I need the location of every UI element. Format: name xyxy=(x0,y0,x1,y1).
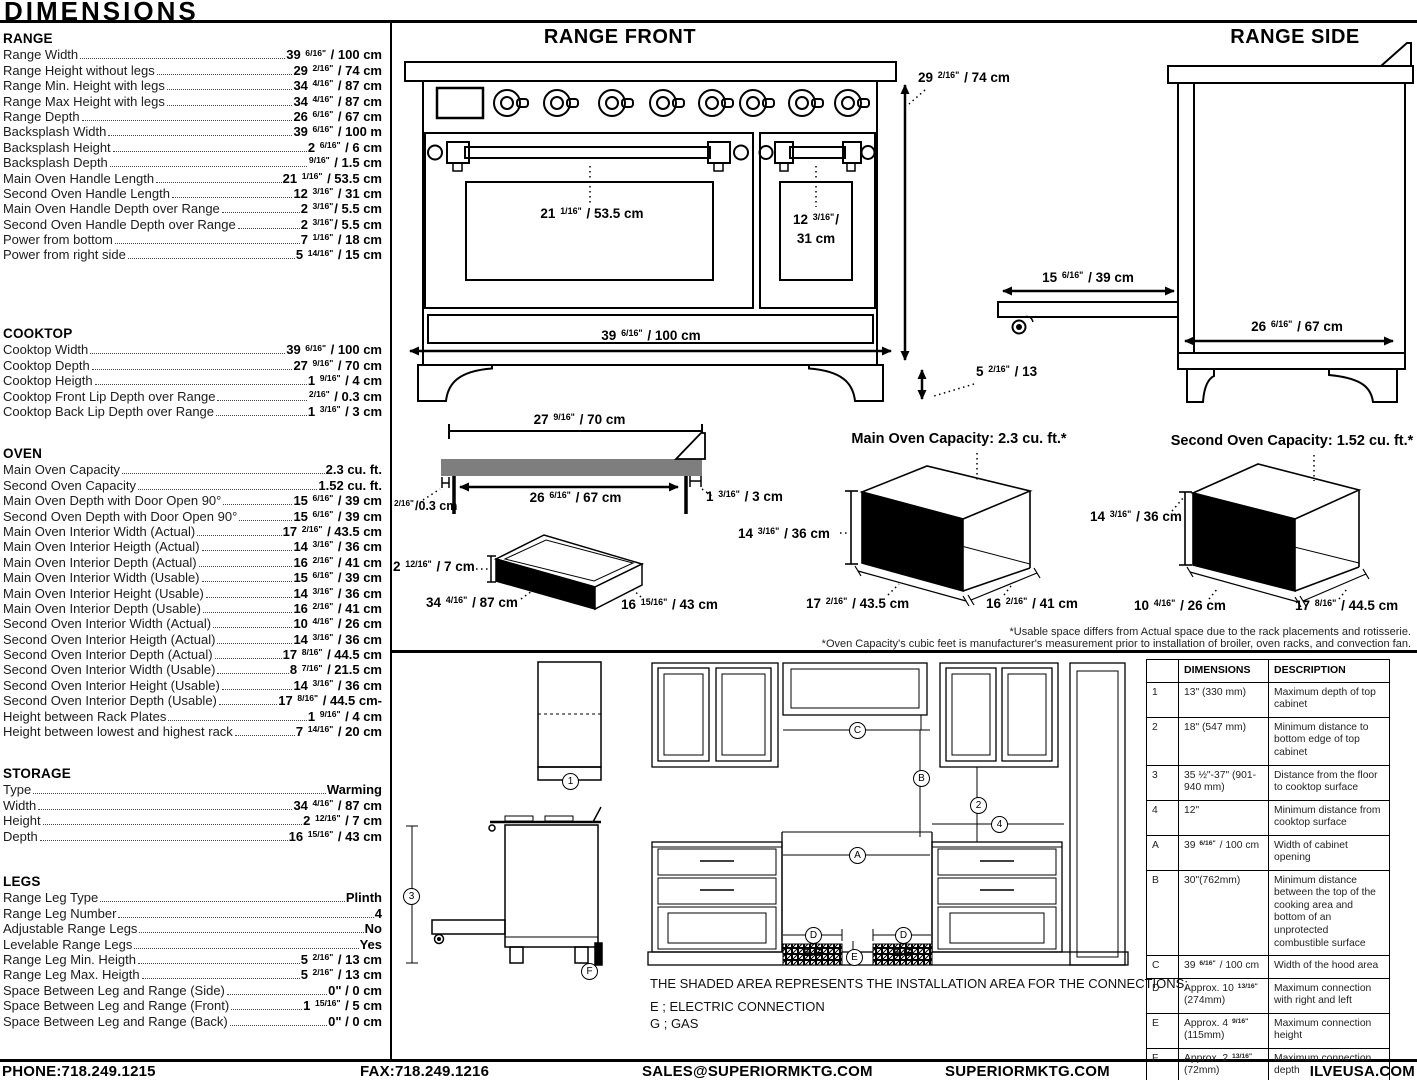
spec-row: Range Width39 6/16" / 100 cm xyxy=(3,47,382,62)
dotted-leader xyxy=(100,901,345,902)
table-cell-id: F xyxy=(1147,1048,1179,1080)
spec-label: Range Depth xyxy=(3,109,80,124)
main-oven-height-dimension: 14 3/16" / 36 cm xyxy=(738,526,830,541)
dotted-leader xyxy=(134,948,358,949)
table-header-row: DIMENSIONS DESCRIPTION xyxy=(1147,660,1390,683)
spec-list: Range Width39 6/16" / 100 cmRange Height… xyxy=(3,47,382,262)
spec-label: Cooktop Front Lip Depth over Range xyxy=(3,389,215,404)
dotted-leader xyxy=(227,994,327,995)
spec-label: Main Oven Interior Depth (Actual) xyxy=(3,555,197,570)
spec-label: Cooktop Heigth xyxy=(3,373,93,388)
spec-value: 1 15/16" / 5 cm xyxy=(303,998,382,1013)
spec-value: 2 6/16" / 6 cm xyxy=(308,140,382,155)
table-cell-description: Width of cabinet opening xyxy=(1269,835,1390,870)
spec-label: Space Between Leg and Range (Front) xyxy=(3,998,229,1013)
spec-value: 16 2/16" / 41 cm xyxy=(293,601,382,616)
spec-row: Second Oven Interior Depth (Actual)17 8/… xyxy=(3,647,382,662)
marker-circle-1: 1 xyxy=(562,773,579,790)
spec-row: Cooktop Front Lip Depth over Range2/16" … xyxy=(3,388,382,403)
second-oven-height-dimension: 14 3/16" / 36 cm xyxy=(1090,509,1182,524)
spec-value: 10 4/16" / 26 cm xyxy=(293,616,382,631)
electric-connection-note: E ; ELECTRIC CONNECTION xyxy=(650,999,825,1014)
spec-label: Main Oven Depth with Door Open 90° xyxy=(3,493,221,508)
spec-row: Space Between Leg and Range (Side)0" / 0… xyxy=(3,982,382,997)
spec-value: 5 2/16" / 13 cm xyxy=(301,967,382,982)
spec-label: Space Between Leg and Range (Side) xyxy=(3,983,225,998)
table-cell-description: Maximum depth of top cabinet xyxy=(1269,682,1390,717)
spec-row: Main Oven Interior Width (Usable)15 6/16… xyxy=(3,570,382,585)
dotted-leader xyxy=(142,978,300,979)
dotted-leader xyxy=(206,597,293,598)
side-depth-dimension: 26 6/16" / 67 cm xyxy=(1202,319,1392,334)
dotted-leader xyxy=(138,963,300,964)
main-oven-capacity-drawing xyxy=(840,453,1040,606)
spec-label: Second Oven Interior Heigth (Actual) xyxy=(3,632,215,647)
spec-section-title: RANGE xyxy=(3,31,382,47)
dotted-leader xyxy=(219,704,277,705)
table-cell-id: E xyxy=(1147,1013,1179,1048)
spec-label: Range Leg Number xyxy=(3,906,116,921)
spec-value: 34 4/16" / 87 cm xyxy=(293,78,382,93)
dotted-leader xyxy=(202,581,293,582)
spec-label: Range Width xyxy=(3,47,78,62)
spec-row: Range Height without legs29 2/16" / 74 c… xyxy=(3,62,382,77)
spec-label: Second Oven Handle Length xyxy=(3,186,170,201)
spec-row: Cooktop Depth27 9/16" / 70 cm xyxy=(3,357,382,372)
dimensions-spec-sheet: DIMENSIONS RANGE Range Width39 6/16" / 1… xyxy=(0,0,1417,1080)
spec-row: Main Oven Interior Depth (Usable)16 2/16… xyxy=(3,601,382,616)
dotted-leader xyxy=(216,415,307,416)
dotted-leader xyxy=(38,809,292,810)
spec-value: 2 3/16"/ 5.5 cm xyxy=(301,201,382,216)
spec-row: Second Oven Capacity1.52 cu. ft. xyxy=(3,477,382,492)
spec-label: Range Max Height with legs xyxy=(3,94,165,109)
spec-label: Second Oven Interior Width (Actual) xyxy=(3,616,211,631)
dotted-leader xyxy=(156,182,282,183)
spec-label: Range Leg Max. Heigth xyxy=(3,967,140,982)
dotted-leader xyxy=(118,917,373,918)
spec-list: TypeWarmingWidth34 4/16" / 87 cmHeight2 … xyxy=(3,782,382,844)
storage-depth-dimension: 16 15/16" / 43 cm xyxy=(621,597,718,612)
spec-row: Main Oven Interior Heigth (Actual)14 3/1… xyxy=(3,539,382,554)
spec-value: 17 8/16" / 44.5 cm xyxy=(283,647,382,662)
table-cell-dimension: Approx. 4 9/16" (115mm) xyxy=(1179,1013,1269,1048)
spec-value: 16 2/16" / 41 cm xyxy=(293,555,382,570)
spec-section-oven: OVEN Main Oven Capacity2.3 cu. ft.Second… xyxy=(3,446,382,739)
dotted-leader xyxy=(115,243,300,244)
dotted-leader xyxy=(82,120,293,121)
spec-row: Width34 4/16" / 87 cm xyxy=(3,797,382,812)
front-second-door-dimension-line1: 12 3/16"/ xyxy=(766,210,866,229)
spec-section-legs: LEGS Range Leg TypePlinthRange Leg Numbe… xyxy=(3,874,382,1029)
spec-list: Range Leg TypePlinthRange Leg Number4Adj… xyxy=(3,890,382,1029)
spec-row: Range Min. Height with legs34 4/16" / 87… xyxy=(3,78,382,93)
spec-row: Second Oven Depth with Door Open 90°15 6… xyxy=(3,508,382,523)
dotted-leader xyxy=(238,228,300,229)
installation-side-view xyxy=(406,662,602,965)
table-row: 335 ½"-37" (901-940 mm)Distance from the… xyxy=(1147,765,1390,800)
spec-label: Second Oven Handle Depth over Range xyxy=(3,217,236,232)
spec-row: Main Oven Interior Depth (Actual)16 2/16… xyxy=(3,554,382,569)
table-cell-id: 1 xyxy=(1147,682,1179,717)
spec-value: 14 3/16" / 36 cm xyxy=(293,678,382,693)
spec-value: 0" / 0 cm xyxy=(328,983,382,998)
spec-row: Power from bottom7 1/16" / 18 cm xyxy=(3,232,382,247)
spec-row: Space Between Leg and Range (Back)0" / 0… xyxy=(3,1013,382,1028)
table-cell-id: 4 xyxy=(1147,800,1179,835)
spec-label: Main Oven Interior Width (Usable) xyxy=(3,570,200,585)
dotted-leader xyxy=(110,166,307,167)
table-cell-dimension: Approx. 10 13/16" (274mm) xyxy=(1179,978,1269,1013)
spec-value: Warming xyxy=(327,782,382,797)
table-row: 412"Minimum distance from cooktop surfac… xyxy=(1147,800,1390,835)
spec-label: Power from bottom xyxy=(3,232,113,247)
usable-space-footnote: *Usable space differs from Actual space … xyxy=(1009,626,1411,638)
spec-row: Second Oven Interior Heigth (Actual)14 3… xyxy=(3,631,382,646)
spec-section-cooktop: COOKTOP Cooktop Width39 6/16" / 100 cmCo… xyxy=(3,326,382,419)
gas-connection-note: G ; GAS xyxy=(650,1016,698,1031)
dotted-leader xyxy=(167,89,293,90)
spec-label: Main Oven Interior Depth (Usable) xyxy=(3,601,201,616)
spec-value: 5 14/16" / 15 cm xyxy=(296,247,382,262)
spec-list: Main Oven Capacity2.3 cu. ft.Second Oven… xyxy=(3,462,382,739)
dotted-leader xyxy=(113,151,307,152)
table-cell-dimension: 18" (547 mm) xyxy=(1179,717,1269,765)
spec-label: Second Oven Depth with Door Open 90° xyxy=(3,509,237,524)
electric-gas-area-label-left: E.G xyxy=(784,947,841,959)
installation-front-view xyxy=(648,663,1128,965)
table-cell-description: Maximum connection with right and left xyxy=(1269,978,1390,1013)
dotted-leader xyxy=(239,520,292,521)
storage-height-dimension: 2 12/16" / 7 cm xyxy=(393,559,475,574)
cooktop-width-dimension: 27 9/16" / 70 cm xyxy=(482,412,677,427)
spec-value: 26 6/16" / 67 cm xyxy=(293,109,382,124)
storage-width-dimension: 34 4/16" / 87 cm xyxy=(426,595,518,610)
spec-row: Backsplash Depth9/16" / 1.5 cm xyxy=(3,155,382,170)
spec-label: Depth xyxy=(3,829,38,844)
table-cell-description: Minimum distance between the top of the … xyxy=(1269,870,1390,955)
spec-value: 5 2/16" / 13 cm xyxy=(301,952,382,967)
spec-label: Space Between Leg and Range (Back) xyxy=(3,1014,228,1029)
spec-value: 34 4/16" / 87 cm xyxy=(293,94,382,109)
spec-value: 2 3/16"/ 5.5 cm xyxy=(301,217,382,232)
second-oven-capacity-drawing xyxy=(1172,455,1369,607)
footer-email: SALES@SUPERIORMKTG.COM xyxy=(642,1063,873,1080)
dotted-leader xyxy=(80,58,285,59)
spec-label: Main Oven Interior Width (Actual) xyxy=(3,524,195,539)
side-door-open-dimension: 15 6/16" / 39 cm xyxy=(1002,270,1174,285)
spec-value: 21 1/16" / 53.5 cm xyxy=(283,171,382,186)
dotted-leader xyxy=(197,535,281,536)
spec-label: Second Oven Interior Depth (Usable) xyxy=(3,693,217,708)
spec-value: 29 2/16" / 74 cm xyxy=(293,63,382,78)
spec-label: Main Oven Interior Heigth (Actual) xyxy=(3,539,200,554)
spec-label: Type xyxy=(3,782,31,797)
spec-value: 15 6/16" / 39 cm xyxy=(293,493,382,508)
spec-row: Range Leg Min. Heigth5 2/16" / 13 cm xyxy=(3,952,382,967)
spec-label: Cooktop Back Lip Depth over Range xyxy=(3,404,214,419)
dotted-leader xyxy=(43,824,303,825)
spec-label: Range Leg Min. Heigth xyxy=(3,952,136,967)
dotted-leader xyxy=(172,197,292,198)
dotted-leader xyxy=(108,135,292,136)
footer-phone: PHONE:718.249.1215 xyxy=(2,1063,156,1080)
spec-section-title: OVEN xyxy=(3,446,382,462)
dotted-leader xyxy=(199,566,293,567)
spec-row: Space Between Leg and Range (Front)1 15/… xyxy=(3,998,382,1013)
dotted-leader xyxy=(217,400,306,401)
spec-value: Yes xyxy=(360,937,382,952)
spec-value: 15 6/16" / 39 cm xyxy=(293,509,382,524)
spec-label: Backsplash Width xyxy=(3,124,106,139)
spec-section-range: RANGE Range Width39 6/16" / 100 cmRange … xyxy=(3,31,382,262)
spec-value: 1.52 cu. ft. xyxy=(318,478,382,493)
main-oven-depth-dimension: 16 2/16" / 41 cm xyxy=(986,596,1078,611)
spec-row: TypeWarming xyxy=(3,782,382,797)
spec-label: Second Oven Interior Depth (Actual) xyxy=(3,647,213,662)
spec-value: 15 6/16" / 39 cm xyxy=(293,570,382,585)
spec-row: Adjustable Range LegsNo xyxy=(3,921,382,936)
dotted-leader xyxy=(122,473,325,474)
table-cell-dimension: 39 6/16" / 100 cm xyxy=(1179,956,1269,979)
dotted-leader xyxy=(235,735,295,736)
spec-section-storage: STORAGE TypeWarmingWidth34 4/16" / 87 cm… xyxy=(3,766,382,844)
spec-row: Main Oven Handle Length21 1/16" / 53.5 c… xyxy=(3,170,382,185)
spec-row: Second Oven Interior Height (Usable)14 3… xyxy=(3,677,382,692)
spec-value: 1 3/16" / 3 cm xyxy=(308,404,382,419)
spec-label: Second Oven Interior Width (Usable) xyxy=(3,662,215,677)
table-cell-description: Minimum distance from cooktop surface xyxy=(1269,800,1390,835)
dotted-leader xyxy=(202,550,293,551)
range-front-drawing xyxy=(405,62,974,401)
spec-row: Range Leg TypePlinth xyxy=(3,890,382,905)
dotted-leader xyxy=(223,504,292,505)
spec-value: 9/16" / 1.5 cm xyxy=(308,155,382,170)
range-side-title: RANGE SIDE xyxy=(1170,26,1417,49)
spec-row: Power from right side5 14/16" / 15 cm xyxy=(3,247,382,262)
dotted-leader xyxy=(222,212,300,213)
table-cell-id: A xyxy=(1147,835,1179,870)
dotted-leader xyxy=(213,627,292,628)
table-row: C39 6/16" / 100 cmWidth of the hood area xyxy=(1147,956,1390,979)
spec-row: Main Oven Interior Height (Usable)14 3/1… xyxy=(3,585,382,600)
spec-value: 39 6/16" / 100 m xyxy=(293,124,382,139)
spec-label: Cooktop Width xyxy=(3,342,88,357)
spec-row: Cooktop Heigth1 9/16" / 4 cm xyxy=(3,373,382,388)
table-row: A39 6/16" / 100 cmWidth of cabinet openi… xyxy=(1147,835,1390,870)
dotted-leader xyxy=(230,1025,327,1026)
spec-label: Second Oven Interior Height (Usable) xyxy=(3,678,220,693)
spec-section-title: LEGS xyxy=(3,874,382,890)
spec-value: 2/16" / 0.3 cm xyxy=(308,389,382,404)
table-cell-description: Width of the hood area xyxy=(1269,956,1390,979)
front-width-dimension: 39 6/16" / 100 cm xyxy=(551,328,751,343)
table-cell-dimension: 39 6/16" / 100 cm xyxy=(1179,835,1269,870)
spec-label: Power from right side xyxy=(3,247,126,262)
marker-circle-A: A xyxy=(849,847,866,864)
spec-value: 2.3 cu. ft. xyxy=(326,462,382,477)
table-cell-id: C xyxy=(1147,956,1179,979)
spec-row: Main Oven Interior Width (Actual)17 2/16… xyxy=(3,524,382,539)
spec-value: 39 6/16" / 100 cm xyxy=(286,47,382,62)
table-cell-dimension: 30"(762mm) xyxy=(1179,870,1269,955)
spec-section-title: COOKTOP xyxy=(3,326,382,342)
table-cell-id: B xyxy=(1147,870,1179,955)
spec-row: Range Leg Max. Heigth5 2/16" / 13 cm xyxy=(3,967,382,982)
spec-value: 17 2/16" / 43.5 cm xyxy=(283,524,382,539)
middle-divider xyxy=(391,650,1417,653)
table-row: DApprox. 10 13/16" (274mm)Maximum connec… xyxy=(1147,978,1390,1013)
cooktop-back-lip-dimension: 1 3/16" / 3 cm xyxy=(706,489,783,504)
dotted-leader xyxy=(40,840,288,841)
footer-website: SUPERIORMKTG.COM xyxy=(945,1063,1110,1080)
cooktop-inner-width-dimension: 26 6/16" / 67 cm xyxy=(478,490,673,505)
table-header-dimensions: DIMENSIONS xyxy=(1179,660,1269,683)
table-row: 113" (330 mm)Maximum depth of top cabine… xyxy=(1147,682,1390,717)
spec-label: Width xyxy=(3,798,36,813)
footer-website2: ILVEUSA.COM xyxy=(1310,1063,1415,1080)
second-oven-capacity-title: Second Oven Capacity: 1.52 cu. ft.* xyxy=(1168,433,1416,449)
dotted-leader xyxy=(90,353,285,354)
table-row: EApprox. 4 9/16" (115mm)Maximum connecti… xyxy=(1147,1013,1390,1048)
table-cell-dimension: 35 ½"-37" (901-940 mm) xyxy=(1179,765,1269,800)
marker-circle-4: 4 xyxy=(991,816,1008,833)
table-header-description: DESCRIPTION xyxy=(1269,660,1390,683)
spec-value: 0" / 0 cm xyxy=(328,1014,382,1029)
table-header-id xyxy=(1147,660,1179,683)
marker-circle-C: C xyxy=(849,722,866,739)
spec-row: Main Oven Capacity2.3 cu. ft. xyxy=(3,462,382,477)
dotted-leader xyxy=(168,720,307,721)
spec-value: 1 9/16" / 4 cm xyxy=(308,373,382,388)
spec-row: Second Oven Handle Length12 3/16" / 31 c… xyxy=(3,186,382,201)
spec-value: 2 12/16" / 7 cm xyxy=(303,813,382,828)
spec-row: Second Oven Interior Depth (Usable)17 8/… xyxy=(3,693,382,708)
dotted-leader xyxy=(92,369,293,370)
spec-value: 7 14/16" / 20 cm xyxy=(296,724,382,739)
spec-row: Range Leg Number4 xyxy=(3,905,382,920)
spec-value: 8 7/16" / 21.5 cm xyxy=(290,662,382,677)
table-cell-description: Distance from the floor to cooktop surfa… xyxy=(1269,765,1390,800)
table-cell-dimension: 13" (330 mm) xyxy=(1179,682,1269,717)
spec-row: Height between lowest and highest rack7 … xyxy=(3,724,382,739)
marker-circle-E: E xyxy=(846,949,863,966)
spec-list: Cooktop Width39 6/16" / 100 cmCooktop De… xyxy=(3,342,382,419)
dotted-leader xyxy=(157,74,293,75)
second-oven-width-dimension: 10 4/16" / 26 cm xyxy=(1134,598,1226,613)
shaded-area-note: THE SHADED AREA REPRESENTS THE INSTALLAT… xyxy=(650,976,1188,991)
spec-value: 14 3/16" / 36 cm xyxy=(293,539,382,554)
spec-value: 1 9/16" / 4 cm xyxy=(308,709,382,724)
range-side-drawing xyxy=(998,43,1413,402)
spec-row: Range Depth26 6/16" / 67 cm xyxy=(3,109,382,124)
table-cell-id: 3 xyxy=(1147,765,1179,800)
footer-fax: FAX:718.249.1216 xyxy=(360,1063,489,1080)
dotted-leader xyxy=(33,793,326,794)
dotted-leader xyxy=(203,612,292,613)
capacity-footnote: *Oven Capacity's cubic feet is manufactu… xyxy=(822,638,1411,650)
spec-value: 17 8/16" / 44.5 cm- xyxy=(278,693,382,708)
spec-row: Height between Rack Plates1 9/16" / 4 cm xyxy=(3,708,382,723)
spec-row: Second Oven Interior Width (Actual)10 4/… xyxy=(3,616,382,631)
marker-circle-3: 3 xyxy=(403,888,420,905)
spec-label: Adjustable Range Legs xyxy=(3,921,137,936)
top-rule xyxy=(0,20,1417,23)
spec-section-title: STORAGE xyxy=(3,766,382,782)
spec-label: Height between lowest and highest rack xyxy=(3,724,233,739)
dotted-leader xyxy=(128,258,295,259)
spec-label: Range Height without legs xyxy=(3,63,155,78)
dotted-leader xyxy=(231,1009,302,1010)
front-main-door-dimension: 21 1/16" / 53.5 cm xyxy=(492,206,692,221)
spec-label: Main Oven Interior Height (Usable) xyxy=(3,586,204,601)
spec-value: 7 1/16" / 18 cm xyxy=(301,232,382,247)
install-dimension-table: DIMENSIONS DESCRIPTION 113" (330 mm)Maxi… xyxy=(1146,659,1390,1080)
spec-value: 12 3/16" / 31 cm xyxy=(293,186,382,201)
spec-row: Cooktop Width39 6/16" / 100 cm xyxy=(3,342,382,357)
main-oven-capacity-title: Main Oven Capacity: 2.3 cu. ft.* xyxy=(844,431,1074,447)
marker-circle-F: F xyxy=(581,963,598,980)
spec-row: Second Oven Handle Depth over Range2 3/1… xyxy=(3,216,382,231)
dotted-leader xyxy=(167,105,293,106)
spec-value: 16 15/16" / 43 cm xyxy=(289,829,382,844)
spec-value: Plinth xyxy=(346,890,382,905)
spec-row: Backsplash Height2 6/16" / 6 cm xyxy=(3,139,382,154)
spec-row: Levelable Range LegsYes xyxy=(3,936,382,951)
spec-label: Backsplash Depth xyxy=(3,155,108,170)
spec-row: Backsplash Width39 6/16" / 100 m xyxy=(3,124,382,139)
spec-label: Backsplash Height xyxy=(3,140,111,155)
dotted-leader xyxy=(217,673,288,674)
marker-circle-2: 2 xyxy=(970,797,987,814)
spec-row: Range Max Height with legs34 4/16" / 87 … xyxy=(3,93,382,108)
dotted-leader xyxy=(139,932,363,933)
table-cell-dimension: Approx. 2 13/16" (72mm) xyxy=(1179,1048,1269,1080)
table-cell-dimension: 12" xyxy=(1179,800,1269,835)
table-row: B30"(762mm)Minimum distance between the … xyxy=(1147,870,1390,955)
spec-label: Range Leg Type xyxy=(3,890,98,905)
spec-label: Height between Rack Plates xyxy=(3,709,166,724)
dotted-leader xyxy=(222,689,293,690)
electric-gas-area-label-right: E.G xyxy=(874,947,931,959)
front-second-door-dimension-line2: 31 cm xyxy=(766,229,866,248)
front-second-door-dimension: 12 3/16"/ 31 cm xyxy=(766,210,866,248)
marker-circle-D-left: D xyxy=(805,927,822,944)
range-front-title: RANGE FRONT xyxy=(455,26,785,49)
spec-label: Range Min. Height with legs xyxy=(3,78,165,93)
spec-row: Cooktop Back Lip Depth over Range1 3/16"… xyxy=(3,404,382,419)
table-cell-description: Minimum distance to bottom edge of top c… xyxy=(1269,717,1390,765)
spec-label: Main Oven Capacity xyxy=(3,462,120,477)
spec-value: 14 3/16" / 36 cm xyxy=(293,632,382,647)
left-column-divider xyxy=(390,21,392,1061)
spec-value: 27 9/16" / 70 cm xyxy=(293,358,382,373)
spec-label: Main Oven Handle Depth over Range xyxy=(3,201,220,216)
spec-value: 14 3/16" / 36 cm xyxy=(293,586,382,601)
spec-row: Height2 12/16" / 7 cm xyxy=(3,813,382,828)
table-row: 218" (547 mm)Minimum distance to bottom … xyxy=(1147,717,1390,765)
spec-label: Second Oven Capacity xyxy=(3,478,136,493)
table-cell-id: 2 xyxy=(1147,717,1179,765)
marker-circle-B: B xyxy=(913,770,930,787)
dotted-leader xyxy=(138,489,317,490)
dotted-leader xyxy=(215,658,282,659)
spec-value: No xyxy=(365,921,382,936)
spec-value: 4 xyxy=(375,906,382,921)
spec-label: Height xyxy=(3,813,41,828)
main-oven-width-dimension: 17 2/16" / 43.5 cm xyxy=(806,596,909,611)
spec-row: Main Oven Depth with Door Open 90°15 6/1… xyxy=(3,493,382,508)
